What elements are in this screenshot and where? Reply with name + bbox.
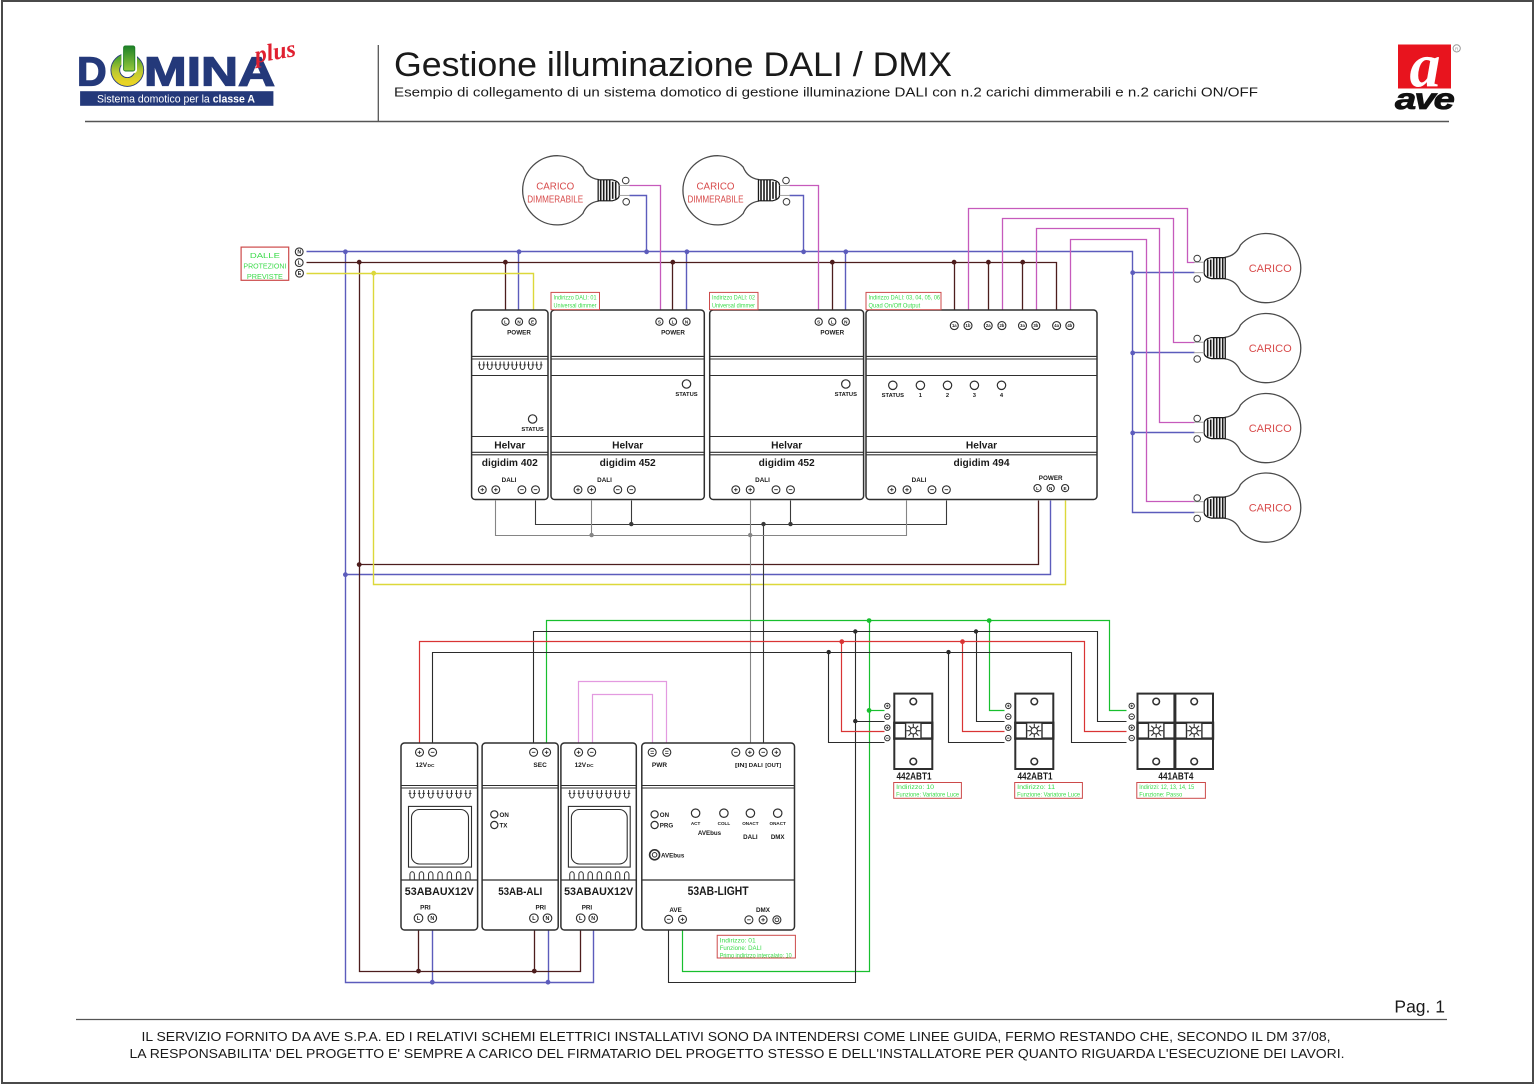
svg-text:ON: ON [500,812,510,819]
svg-text:DALI: DALI [743,834,758,841]
svg-text:DMX: DMX [771,834,786,841]
svg-text:N: N [591,916,595,922]
svg-text:Sistema domotico per la classe: Sistema domotico per la classe A [97,93,255,105]
svg-text:POWER: POWER [820,330,844,337]
svg-text:STATUS: STATUS [675,392,697,398]
svg-text:DMX: DMX [756,907,771,914]
svg-text:Indirizzo: 11: Indirizzo: 11 [1017,784,1055,791]
svg-text:digidim 494: digidim 494 [953,458,1009,469]
svg-text:3a: 3a [1020,323,1025,328]
svg-text:Indirizzi: 12, 13, 14, 15: Indirizzi: 12, 13, 14, 15 [1139,784,1194,791]
svg-text:Funzione: DALI: Funzione: DALI [720,945,762,952]
svg-text:L: L [831,319,834,324]
svg-text:N: N [297,250,301,256]
svg-text:Helvar: Helvar [612,440,643,451]
svg-text:AVE: AVE [669,907,681,914]
svg-text:Indirizzo: 01: Indirizzo: 01 [720,938,756,945]
svg-text:STATUS: STATUS [882,393,904,399]
svg-text:Indirizzo DALI: 03, 04, 05, 06: Indirizzo DALI: 03, 04, 05, 06 [869,294,941,301]
svg-text:Helvar: Helvar [771,440,802,451]
svg-text:AVEbus: AVEbus [698,830,722,837]
svg-text:ON: ON [660,812,670,819]
svg-text:4b: 4b [1067,323,1072,328]
svg-text:1b: 1b [966,323,971,328]
svg-text:CARICO: CARICO [1249,423,1292,435]
svg-text:Pag. 1: Pag. 1 [1394,997,1445,1017]
svg-text:Helvar: Helvar [494,440,525,451]
svg-text:CARICO: CARICO [1249,502,1292,514]
svg-text:1a: 1a [952,323,957,328]
svg-text:digidim 452: digidim 452 [759,458,815,469]
svg-text:DALI: DALI [912,477,927,484]
svg-text:COLL: COLL [718,821,731,826]
svg-text:DALI: DALI [749,763,763,769]
svg-text:[IN]: [IN] [735,763,747,769]
svg-text:IL SERVIZIO FORNITO DA AVE S.P: IL SERVIZIO FORNITO DA AVE S.P.A. ED I R… [142,1029,1331,1044]
svg-text:CARICO: CARICO [1249,343,1292,355]
svg-text:12V: 12V [415,762,427,769]
svg-text:Funzione: Passo: Funzione: Passo [1139,792,1182,799]
svg-text:53ABAUX12V: 53ABAUX12V [564,886,634,898]
svg-text:N: N [546,916,550,922]
svg-text:[OUT]: [OUT] [765,763,781,769]
svg-text:CARICO: CARICO [536,181,574,192]
svg-text:CARICO: CARICO [1249,263,1292,275]
svg-text:DC: DC [587,763,594,769]
svg-text:E: E [531,319,534,324]
svg-text:AVEbus: AVEbus [661,852,685,859]
svg-text:PRI: PRI [420,905,431,912]
svg-text:STATUS: STATUS [521,427,543,433]
svg-text:Universal dimmer: Universal dimmer [712,302,756,309]
svg-text:Indirizzo DALI: 02: Indirizzo DALI: 02 [712,294,755,301]
svg-text:S: S [817,319,820,324]
svg-text:2: 2 [946,393,949,399]
svg-text:442ABT1: 442ABT1 [897,771,932,782]
svg-text:2a: 2a [986,323,991,328]
svg-text:DALLE: DALLE [250,251,280,260]
svg-text:ONACT: ONACT [770,821,787,826]
svg-text:Primo indirizzo intercalato: 1: Primo indirizzo intercalato: 10 [720,953,792,960]
svg-text:53AB-LIGHT: 53AB-LIGHT [688,886,749,898]
svg-text:digidim 402: digidim 402 [482,458,538,469]
svg-text:PRG: PRG [660,823,674,830]
svg-text:DALI: DALI [597,477,612,484]
svg-text:53AB-ALI: 53AB-ALI [498,886,542,898]
svg-text:POWER: POWER [507,330,531,337]
svg-text:E: E [1064,486,1067,491]
svg-text:Helvar: Helvar [966,440,997,451]
svg-text:Indirizzo: 10: Indirizzo: 10 [896,784,934,791]
svg-text:LA RESPONSABILITA' DEL PROGETT: LA RESPONSABILITA' DEL PROGETTO E' SEMPR… [130,1046,1345,1061]
svg-text:digidim 452: digidim 452 [600,458,656,469]
svg-text:E: E [298,271,302,277]
svg-text:53ABAUX12V: 53ABAUX12V [405,886,475,898]
svg-text:Gestione illuminazione DALI /: Gestione illuminazione DALI / DMX [394,46,952,84]
svg-text:DIMMERABILE: DIMMERABILE [527,194,583,205]
svg-text:442ABT1: 442ABT1 [1018,771,1053,782]
svg-text:POWER: POWER [1039,475,1063,482]
svg-text:D: D [77,48,107,94]
svg-text:ONACT: ONACT [742,821,759,826]
svg-text:CARICO: CARICO [697,181,735,192]
svg-text:STATUS: STATUS [835,392,857,398]
svg-text:DC: DC [428,763,435,769]
svg-text:Esempio di collegamento di un: Esempio di collegamento di un sistema do… [394,85,1258,100]
svg-text:Indirizzo DALI: 01: Indirizzo DALI: 01 [554,294,597,301]
svg-text:3b: 3b [1033,323,1038,328]
svg-text:ACT: ACT [691,821,701,826]
svg-text:POWER: POWER [661,330,685,337]
svg-text:Universal dimmer: Universal dimmer [554,302,598,309]
svg-text:L: L [504,319,507,324]
svg-text:DALI: DALI [755,477,770,484]
svg-text:SEC: SEC [533,762,547,769]
svg-text:ave: ave [1395,83,1454,116]
svg-text:12V: 12V [575,762,587,769]
svg-text:DALI: DALI [502,477,517,484]
svg-text:4a: 4a [1054,323,1059,328]
svg-text:Funzione: Variatore Luce: Funzione: Variatore Luce [1017,792,1080,799]
svg-text:L: L [1036,486,1039,491]
svg-text:441ABT4: 441ABT4 [1158,771,1193,782]
svg-text:DIMMERABILE: DIMMERABILE [688,194,744,205]
svg-text:Funzione: Variatore Luce: Funzione: Variatore Luce [896,792,959,799]
svg-text:TX: TX [500,823,509,830]
svg-text:R: R [1455,47,1459,53]
svg-text:PWR: PWR [652,762,667,769]
svg-text:PROTEZIONI: PROTEZIONI [243,261,286,270]
svg-text:2b: 2b [999,323,1004,328]
svg-text:PRI: PRI [535,905,546,912]
svg-text:N: N [430,916,434,922]
svg-text:PREVISTE: PREVISTE [247,272,283,281]
svg-text:L: L [672,319,675,324]
svg-text:PRI: PRI [582,905,593,912]
svg-text:S: S [658,319,661,324]
svg-text:Quad On/Off Output: Quad On/Off Output [869,302,921,309]
